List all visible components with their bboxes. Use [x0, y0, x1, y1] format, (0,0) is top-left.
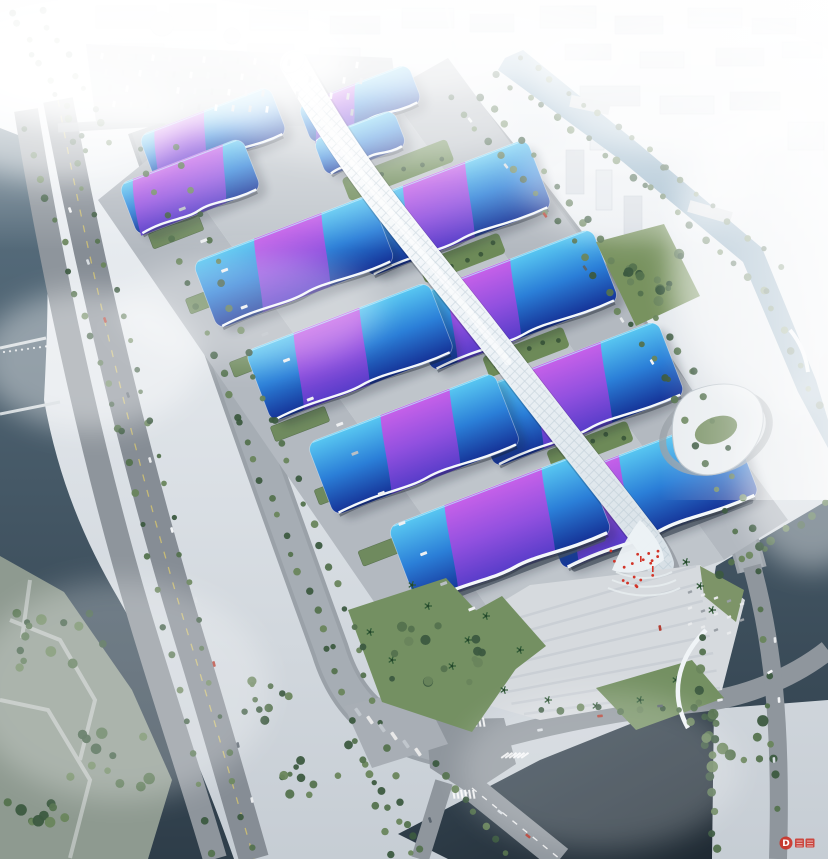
tree [221, 370, 228, 377]
tree [728, 559, 735, 566]
tree [284, 532, 291, 539]
vehicle [774, 637, 777, 643]
vehicle [773, 757, 776, 763]
palm-crown [451, 665, 454, 668]
tree [283, 458, 289, 464]
tree [378, 787, 386, 795]
tree [442, 772, 450, 780]
tree [65, 268, 71, 274]
tree [208, 850, 215, 857]
tree [404, 637, 413, 646]
tree [739, 556, 746, 563]
tree [695, 686, 704, 695]
tree [126, 459, 133, 466]
palm-crown [503, 689, 506, 692]
tree [118, 428, 125, 435]
tree [441, 665, 448, 672]
tree [306, 792, 313, 799]
tree [295, 475, 302, 482]
tree [746, 552, 753, 559]
red-decoration [642, 558, 645, 561]
palm-crown [411, 584, 414, 587]
tree [713, 845, 721, 853]
tree [463, 796, 469, 802]
tree [4, 798, 12, 806]
tree [245, 439, 251, 445]
tree [424, 676, 433, 685]
tree [624, 267, 634, 277]
aerial-rendering: D [0, 0, 828, 859]
tree [369, 697, 376, 704]
tree [478, 649, 486, 657]
red-decoration [635, 584, 638, 587]
tree [771, 770, 779, 778]
tree [699, 649, 706, 656]
tree [249, 844, 255, 850]
tree [408, 850, 413, 855]
tree [229, 778, 235, 784]
tree [331, 668, 337, 674]
tree [757, 715, 768, 726]
tree [696, 664, 705, 673]
tree [708, 709, 719, 720]
tree [366, 770, 374, 778]
tree [293, 568, 301, 576]
tree [381, 828, 388, 835]
palm-crown [369, 631, 372, 634]
palm-crown [685, 561, 688, 564]
tree [722, 508, 728, 514]
red-decoration [622, 579, 625, 582]
red-decoration [649, 562, 652, 565]
tree [344, 741, 353, 750]
red-decoration [657, 550, 660, 553]
tree [360, 672, 366, 678]
tree [278, 440, 285, 447]
tree [606, 289, 613, 296]
tree [338, 689, 345, 696]
tree [272, 417, 279, 424]
tree [33, 815, 45, 827]
tree [389, 676, 395, 682]
tree [161, 481, 167, 487]
tree [589, 272, 596, 279]
tree [237, 814, 243, 820]
tree [404, 821, 411, 828]
tree [315, 542, 322, 549]
palm-crown [427, 605, 430, 608]
tree [451, 785, 459, 793]
tree [172, 515, 177, 520]
tree [639, 341, 645, 347]
watermark-letter: D [782, 839, 789, 849]
tree [250, 374, 255, 379]
palm-crown [699, 585, 702, 588]
tree [758, 606, 764, 612]
tree [627, 278, 634, 285]
tree [408, 626, 415, 633]
tree [288, 552, 293, 557]
tree [309, 781, 317, 789]
vehicle [778, 697, 781, 703]
tree [250, 456, 256, 462]
tree [45, 817, 56, 828]
tree [323, 646, 329, 652]
tree [15, 804, 26, 815]
tree [614, 308, 621, 315]
tree [696, 699, 703, 706]
tree [715, 570, 724, 579]
aerial-rendering-stage: D [0, 0, 828, 859]
tree [201, 817, 209, 825]
tree [335, 772, 342, 779]
tree [470, 809, 476, 815]
tree [256, 477, 263, 484]
tree [301, 501, 306, 506]
tree [371, 802, 379, 810]
tree [755, 568, 761, 574]
tree [285, 789, 294, 798]
tree [320, 625, 327, 632]
red-decoration [609, 550, 612, 553]
red-decoration [633, 576, 636, 579]
tree [384, 804, 390, 810]
palm-crown [391, 659, 394, 662]
tree [760, 636, 767, 643]
tree [274, 512, 280, 518]
tree [392, 772, 399, 779]
tree [334, 580, 341, 587]
tree [654, 276, 661, 283]
tree [297, 774, 306, 783]
palm-crown [467, 639, 470, 642]
tree [157, 454, 161, 458]
tree [349, 717, 356, 724]
tree [397, 622, 407, 632]
tree [432, 760, 439, 767]
tree [236, 419, 243, 426]
tree [409, 832, 416, 839]
tree [699, 634, 706, 641]
tree [753, 733, 762, 742]
tree [342, 606, 347, 611]
tree [416, 846, 423, 853]
tree [581, 253, 589, 261]
red-decoration [613, 560, 616, 563]
tree [466, 679, 472, 685]
tree [741, 757, 747, 763]
tree [396, 799, 403, 806]
tree [492, 836, 499, 843]
tree [352, 738, 358, 744]
tree [434, 622, 441, 629]
tree [285, 692, 293, 700]
tree [653, 315, 659, 321]
red-decoration [623, 566, 626, 569]
red-flag [640, 556, 642, 562]
tree [311, 520, 319, 528]
tree [260, 395, 266, 401]
red-decoration [651, 574, 654, 577]
tree [503, 850, 509, 856]
tree [383, 744, 391, 752]
tree [767, 741, 774, 748]
tree [269, 495, 276, 502]
tree [420, 635, 430, 645]
tree [296, 756, 305, 765]
tree [359, 756, 366, 763]
palm-crown [485, 615, 488, 618]
tree [387, 851, 394, 858]
tree [391, 650, 398, 657]
tree [279, 690, 286, 697]
tree [708, 830, 715, 837]
tree [774, 806, 780, 812]
tree [306, 588, 313, 595]
palm-crown [711, 609, 714, 612]
tree [732, 529, 738, 535]
tree [325, 563, 332, 570]
tree [483, 823, 490, 830]
red-decoration [626, 582, 629, 585]
tree [396, 818, 402, 824]
red-flag [652, 566, 654, 572]
tree [330, 644, 335, 649]
tree [352, 624, 358, 630]
tree [765, 703, 770, 708]
tree [472, 635, 481, 644]
tree [628, 322, 633, 327]
tree [636, 272, 645, 281]
tree [756, 755, 763, 762]
tree [176, 552, 182, 558]
tree [131, 489, 139, 497]
tree [608, 257, 615, 264]
tree [186, 579, 192, 585]
red-decoration [631, 562, 634, 565]
tree [473, 658, 483, 668]
red-decoration [656, 555, 659, 558]
tree [101, 262, 107, 268]
palm-crown [519, 649, 522, 652]
tree [144, 553, 151, 560]
tree [638, 291, 644, 297]
tree [49, 803, 57, 811]
tree [315, 606, 322, 613]
tree [293, 764, 299, 770]
tree [360, 644, 367, 651]
red-decoration [651, 559, 654, 562]
red-decoration [639, 579, 642, 582]
tree [60, 813, 69, 822]
tree [372, 780, 377, 785]
red-decoration [647, 552, 650, 555]
tree [225, 391, 232, 398]
tree [279, 771, 288, 780]
red-decoration [636, 553, 639, 556]
tree [140, 522, 145, 527]
